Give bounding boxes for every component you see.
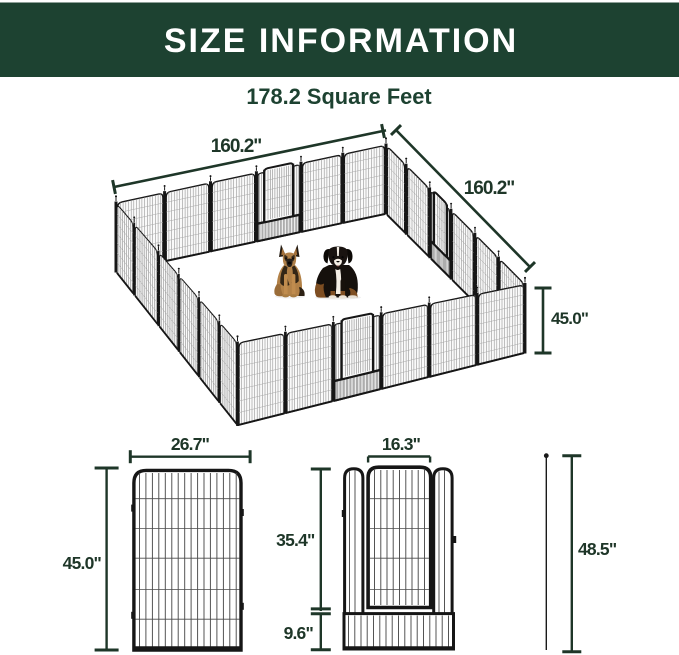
- svg-text:45.0": 45.0": [63, 553, 102, 573]
- svg-text:45.0": 45.0": [551, 309, 588, 328]
- svg-text:35.4": 35.4": [276, 530, 315, 550]
- svg-text:160.2": 160.2": [211, 136, 262, 157]
- svg-text:16.3": 16.3": [382, 434, 421, 454]
- svg-text:26.7": 26.7": [171, 434, 210, 454]
- svg-text:9.6": 9.6": [284, 623, 314, 643]
- svg-text:160.2": 160.2": [464, 178, 515, 199]
- svg-text:SIZE INFORMATION: SIZE INFORMATION: [164, 22, 518, 60]
- svg-text:48.5": 48.5": [578, 539, 617, 559]
- svg-text:178.2 Square Feet: 178.2 Square Feet: [246, 84, 431, 109]
